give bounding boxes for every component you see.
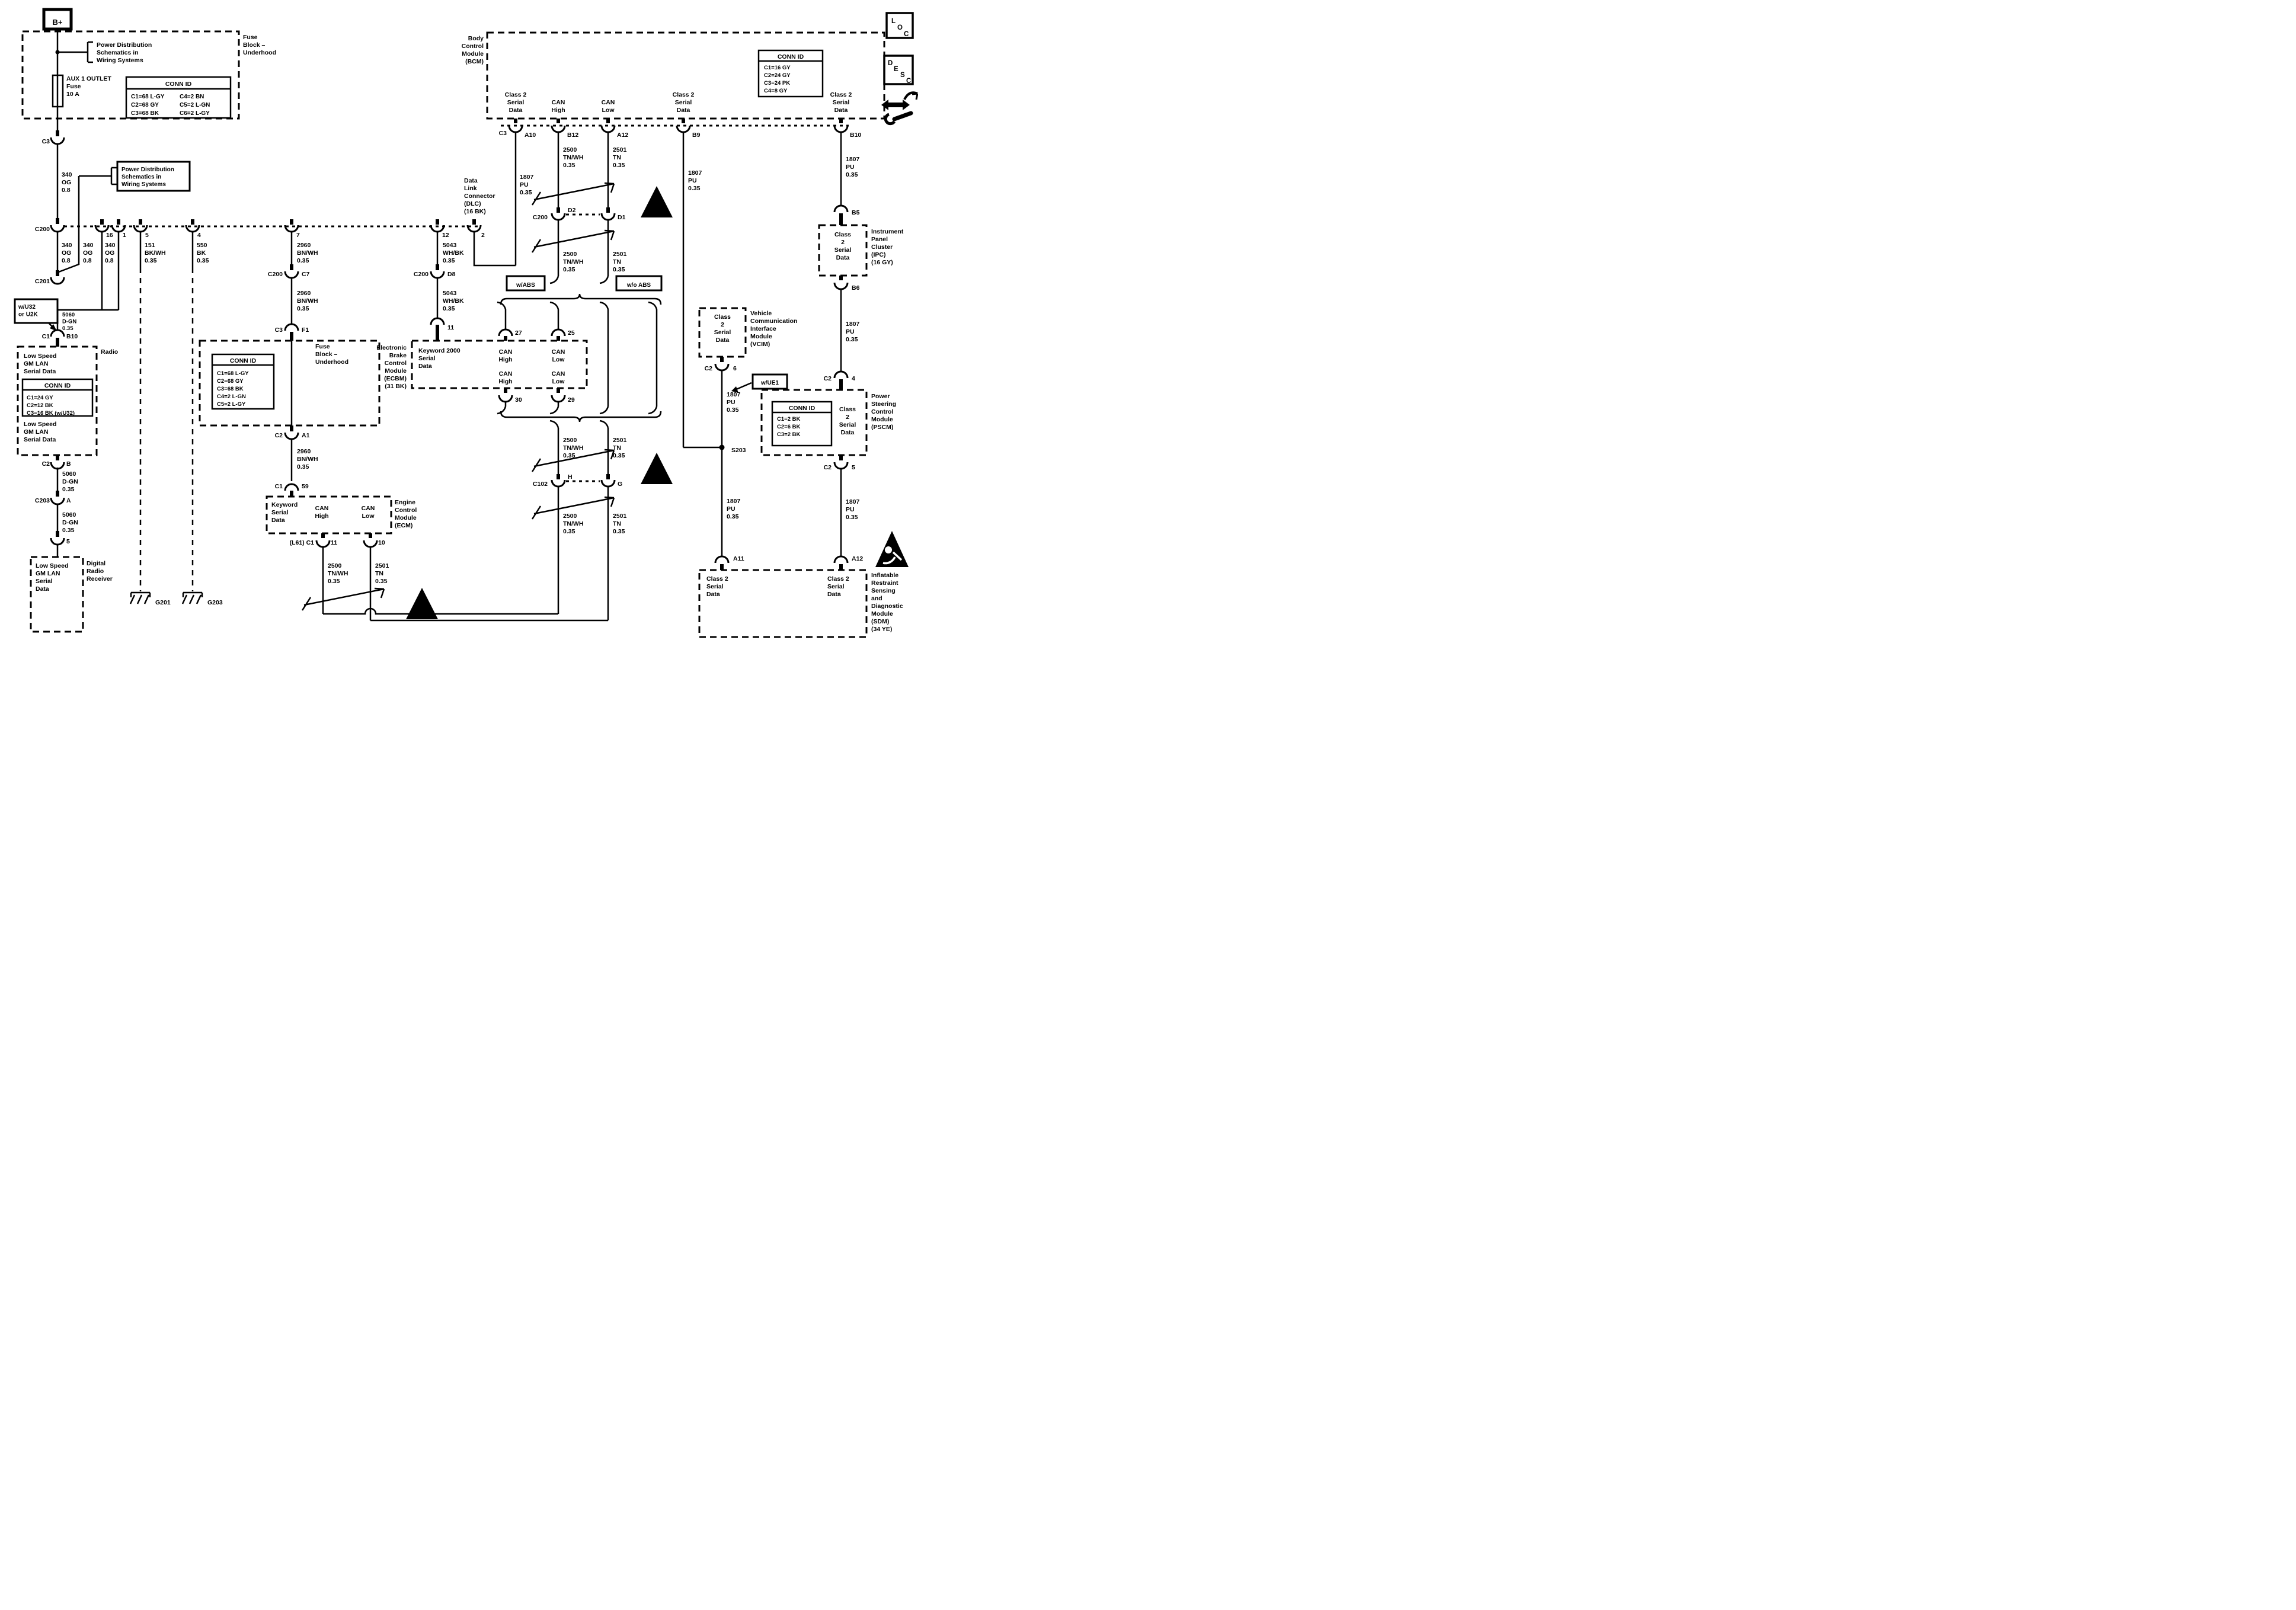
- label-middle-fuse_block2-conn_table-2: C3=68 BK: [217, 386, 244, 392]
- twisted-pair-mark-ecm: [302, 588, 384, 610]
- label-right-sdm-a11: A11: [733, 555, 744, 562]
- label-left-radio-lan: Low SpeedGM LANSerial Data: [24, 421, 56, 443]
- label-left-row_pins-p16: 16: [106, 232, 113, 239]
- splice-s203-dot: [720, 445, 725, 450]
- stub-c201: [56, 270, 59, 276]
- label-middle-ecbm-p27: 27: [515, 329, 522, 337]
- label-left-fuse_block1-conn_table-5: C6=2 L-GY: [180, 110, 210, 117]
- label-right-sdm-label: InflatableRestraintSensingandDiagnosticM…: [871, 572, 903, 633]
- label-right-bcm-conn_table-0: C1=16 GY: [764, 65, 791, 71]
- label-middle-wire_2501: 2501TN0.35: [613, 437, 627, 459]
- label-middle-ecm-p10: 10: [378, 539, 385, 546]
- w-ue1-arrow-line: [735, 383, 752, 390]
- label-middle-ecbm-can_high: CANHigh: [498, 370, 512, 385]
- label-right-g: G: [618, 481, 622, 488]
- label-right-ipc-b5: B5: [852, 209, 860, 216]
- connector-c200-d8: [431, 271, 444, 278]
- connector-ecbm-pin27: [499, 329, 512, 336]
- label-middle-ecbm-p29: 29: [568, 396, 575, 404]
- label-middle-f1: F1: [302, 327, 309, 334]
- label-right-vcim-p6: 6: [733, 365, 737, 372]
- label-right-ipc-class2: Class2SerialData: [834, 231, 852, 261]
- label-right-vcim-class2: Class2SerialData: [714, 313, 731, 344]
- label-left-radio-conn_table-1: C2=12 BK: [27, 402, 53, 409]
- stub-ecbm-25: [557, 336, 560, 341]
- label-middle-ecbm-can_high: CANHigh: [498, 348, 512, 363]
- label-right-vcim-label: VehicleCommunicationInterfaceModule(VCIM…: [750, 310, 797, 348]
- label-middle-c3: C3: [275, 327, 283, 334]
- label-left-wire_5060: 5060D-GN0.35: [62, 511, 78, 534]
- label-middle-dlc-label: DataLinkConnector(DLC)(16 BK): [464, 177, 495, 215]
- label-right-bcm-c3: C3: [499, 130, 507, 137]
- wire-end-hooks-tops: [497, 302, 657, 309]
- label-right-w_abs: w/ABS: [516, 282, 535, 289]
- connector-c2-a1: [285, 433, 298, 439]
- label-left-fuse_block1-conn_table-0: C1=68 L-GY: [131, 94, 165, 100]
- label-left-wire_151: 151BK/WH0.35: [145, 242, 166, 264]
- label-right-bcm-b10: B10: [850, 132, 861, 139]
- label-middle-ecbm-p30: 30: [515, 396, 522, 404]
- stub-pscm-5: [839, 455, 843, 460]
- label-middle-ecbm-p25: 25: [568, 329, 575, 337]
- label-icons-loc-0: L: [891, 18, 896, 25]
- label-middle-c2: C2: [275, 432, 283, 439]
- label-right-wire_1807: 1807PU0.35: [688, 169, 702, 192]
- label-icons-desc-0: D: [888, 60, 893, 67]
- wiring-diagram: B+FuseBlock –UnderhoodPower Distribution…: [0, 0, 918, 644]
- label-right-c200: C200: [533, 214, 548, 221]
- label-left-radio-b10: B10: [66, 333, 78, 340]
- label-right-d1: D1: [618, 214, 626, 221]
- label-left-wire_550: 550BK0.35: [197, 242, 209, 264]
- label-left-radio-conn_table-2: C3=16 BK (w/U32): [27, 410, 75, 417]
- label-icons-desc-3: C: [906, 78, 911, 85]
- label-right-bcm-class2: Class 2SerialData: [830, 91, 852, 114]
- abs-brace-bottom: [501, 411, 661, 422]
- stub-bcm-b9: [682, 119, 685, 123]
- connector-c200: [51, 225, 64, 232]
- label-left-wire_5060: 5060D-GN0.35: [62, 312, 76, 332]
- stub-pin5: [139, 219, 142, 225]
- label-right-wire_1807: 1807PU0.35: [727, 498, 741, 520]
- stub-pscm-4: [839, 379, 843, 390]
- stub-c102-g: [606, 474, 610, 479]
- label-left-receiver-lan: Low SpeedGM LANSerialData: [36, 562, 68, 593]
- label-common-conn_id: CONN ID: [789, 405, 816, 412]
- connector-c200-d2: [552, 213, 565, 220]
- connector-c1-59: [285, 484, 298, 491]
- junction-dot-bplus: [56, 50, 60, 55]
- label-right-bcm-b12: B12: [567, 132, 578, 139]
- stub-pin12: [436, 219, 439, 225]
- stub-radio-c2: [56, 455, 59, 460]
- label-right-wire_1807: 1807PU0.35: [846, 156, 860, 178]
- stub-ecm-11: [321, 533, 325, 538]
- stub-pin7: [290, 219, 293, 225]
- label-icons-loc-2: C: [904, 31, 909, 38]
- stub-radio-b10: [56, 338, 59, 347]
- label-right-pscm-conn_table-2: C3=2 BK: [777, 431, 800, 438]
- connector-ecm-pin10: [364, 540, 377, 547]
- label-right-bcm-class2: Class 2SerialData: [673, 91, 695, 114]
- connector-c102-g: [602, 480, 615, 486]
- connector-ecbm-pin30: [499, 395, 512, 402]
- label-middle-ecbm-keyword: Keyword 2000SerialData: [418, 347, 461, 370]
- stub-ipc-b6: [839, 276, 843, 280]
- label-middle-wire_5043: 5043WH/BK0.35: [443, 290, 464, 312]
- label-left-wire_340: 340OG0.8: [62, 171, 72, 194]
- label-right-h: H: [568, 473, 573, 481]
- label-left-power_dist1: Power DistributionSchematics inWiring Sy…: [97, 41, 152, 64]
- stub-d1: [606, 207, 610, 213]
- connector-bcm-b10: [834, 126, 848, 132]
- label-left-fuse_block1-conn_table-3: C4=2 BN: [180, 94, 204, 100]
- label-middle-wire_2960: 2960BN/WH0.35: [297, 290, 318, 312]
- label-right-bcm-b9: B9: [692, 132, 701, 139]
- stub-bcm-b12: [557, 119, 560, 123]
- label-left-bplus: B+: [53, 18, 63, 27]
- stub-a1: [290, 425, 293, 431]
- label-middle-wire_2500: 2500TN/WH0.35: [563, 437, 583, 459]
- label-right-bcm-conn_table-1: C2=24 GY: [764, 72, 791, 79]
- connector-c201: [51, 277, 64, 284]
- label-left-fuse_block1-fuse: AUX 1 OUTLETFuse10 A: [66, 75, 111, 98]
- stub-ecbm-11: [436, 325, 439, 341]
- label-right-bcm-can_high: CANHigh: [551, 99, 565, 114]
- label-right-pscm-p5: 5: [852, 464, 855, 471]
- label-left-g201: G201: [155, 599, 171, 606]
- power-dist-1-bracket: [57, 42, 93, 62]
- label-right-bcm-a12: A12: [617, 132, 628, 139]
- connector-bcm-a10: [509, 126, 522, 132]
- label-common-warn: !: [655, 469, 659, 482]
- connector-pscm-c2-5: [834, 462, 848, 469]
- stub-d2: [557, 207, 560, 213]
- stub-bcm-b10: [839, 119, 843, 123]
- label-left-radio-label: Radio: [101, 348, 118, 356]
- stub-59: [290, 491, 293, 497]
- label-right-wo_abs: w/o ABS: [626, 282, 651, 289]
- stub-ipc-b5: [839, 213, 843, 225]
- label-right-pscm-p4: 4: [852, 375, 855, 382]
- wiring-diagram-page: B+FuseBlock –UnderhoodPower Distribution…: [0, 0, 918, 644]
- label-middle-wire_2501: 2501TN0.35: [375, 562, 389, 585]
- twisted-pair-mark-d2-lower: [532, 231, 614, 252]
- stub-ecbm-29: [557, 388, 560, 393]
- label-middle-fuse_block2-conn_table-1: C2=68 GY: [217, 378, 244, 385]
- label-left-c203: C203: [35, 497, 50, 504]
- ground-g203-symbol: [183, 593, 202, 604]
- label-right-d2: D2: [568, 207, 576, 214]
- label-middle-ecbm-label: ElectronicBrakeControlModule(ECBM)(31 BK…: [376, 344, 407, 390]
- label-right-bcm-a10: A10: [525, 132, 536, 139]
- label-left-row_pins-p2: 2: [481, 232, 485, 239]
- label-right-vcim-w_ue1: w/UE1: [760, 380, 779, 386]
- ground-g201-symbol: [130, 593, 150, 604]
- label-left-p5b: 5: [66, 538, 70, 545]
- label-right-sdm-a12: A12: [852, 555, 863, 562]
- connector-ecm-pin11: [316, 540, 330, 547]
- label-left-fuse_block1-conn_table-1: C2=68 GY: [131, 102, 159, 108]
- stub-bcm-a12: [606, 119, 610, 123]
- connector-ipc-b6: [834, 283, 848, 289]
- label-right-wire_1807: 1807PU0.35: [846, 321, 860, 343]
- label-left-c200: C200: [35, 226, 50, 233]
- label-middle-c7: C7: [302, 271, 310, 278]
- stub-ecbm-27: [504, 336, 507, 341]
- label-middle-wire_2500: 2500TN/WH0.35: [563, 146, 583, 169]
- service-wrench-icon[interactable]: [885, 92, 917, 123]
- label-middle-n59: 59: [302, 483, 309, 490]
- connector-bcm-a12: [602, 126, 615, 132]
- connector-bcm-b12: [552, 126, 565, 132]
- connector-ipc-b5: [834, 206, 848, 212]
- label-middle-fuse_block2-conn_table-3: C4=2 L-GN: [217, 393, 246, 400]
- label-right-c102: C102: [533, 481, 548, 488]
- label-right-vcim-s203: S203: [731, 447, 746, 454]
- label-middle-wire_2500: 2500TN/WH0.35: [563, 251, 583, 273]
- label-right-pscm-class2: Class2SerialData: [839, 406, 856, 436]
- label-common-warn: !: [420, 604, 424, 617]
- label-common-conn_id: CONN ID: [230, 357, 257, 364]
- label-right-pscm-c2: C2: [824, 464, 832, 471]
- label-middle-wire_5043: 5043WH/BK0.35: [443, 242, 464, 264]
- label-left-radio-lan: Low SpeedGM LANSerial Data: [24, 353, 56, 375]
- label-middle-c200: C200: [268, 271, 283, 278]
- label-left-row_pins-p4: 4: [197, 232, 201, 239]
- stub-bcm-a10: [514, 119, 517, 123]
- label-left-radio-c2: C2: [42, 460, 50, 468]
- label-left-wire_340: 340OG0.8: [83, 242, 94, 264]
- wire-end-hooks-above-brace: [550, 276, 608, 283]
- connector-c3: [51, 137, 64, 144]
- label-right-bcm-class2: Class 2SerialData: [505, 91, 527, 114]
- connector-ecbm-pin29: [552, 395, 565, 402]
- label-left-radio-b: B: [66, 460, 71, 468]
- label-common-conn_id: CONN ID: [778, 53, 804, 60]
- label-middle-ecm-can_low: CANLow: [362, 505, 375, 520]
- label-middle-ecbm-p11: 11: [447, 324, 454, 331]
- stub-c3: [56, 130, 59, 136]
- stub-pin4: [191, 219, 194, 225]
- connector-ecbm-pin11: [431, 318, 444, 325]
- stub-sdm-a12: [839, 564, 843, 570]
- label-left-fuse_block1-conn_table-4: C5=2 L-GN: [180, 102, 210, 108]
- twisted-pair-mark-d2-upper: [532, 183, 614, 205]
- label-common-warn: !: [655, 203, 659, 216]
- stub-c200: [56, 218, 59, 224]
- label-middle-fuse_block2-conn_table-4: C5=2 L-GY: [217, 401, 246, 408]
- service-double-arrow-icon[interactable]: [881, 100, 910, 110]
- label-right-wire_1807: 1807PU0.35: [520, 174, 534, 196]
- stub-sdm-a11: [720, 564, 724, 570]
- label-left-row_pins-p1: 1: [123, 232, 126, 239]
- label-common-conn_id: CONN ID: [44, 382, 71, 389]
- stub-f1: [290, 332, 293, 341]
- label-middle-ecbm-can_low: CANLow: [552, 370, 565, 385]
- connector-receiver-pin5: [51, 538, 64, 545]
- stub-dlc-pin2: [472, 219, 476, 225]
- label-icons-loc-1: O: [897, 24, 903, 31]
- label-middle-ecm-keyword: KeywordSerialData: [271, 501, 298, 524]
- label-left-row_pins-p12: 12: [442, 232, 449, 239]
- label-icons-desc-1: E: [894, 66, 898, 73]
- label-right-pscm-c2: C2: [824, 375, 832, 382]
- power-dist-2-bracket: [79, 168, 117, 184]
- stub-c7: [290, 264, 293, 270]
- connector-ecbm-pin25: [552, 329, 565, 336]
- label-right-sdm-class2: Class 2SerialData: [706, 575, 728, 598]
- label-right-wire_1807: 1807PU0.35: [846, 498, 860, 521]
- label-middle-wire_2960: 2960BN/WH0.35: [297, 242, 318, 264]
- label-right-bcm-can_low: CANLow: [602, 99, 615, 114]
- label-middle-a1: A1: [302, 432, 310, 439]
- label-middle-wire_2500: 2500TN/WH0.35: [563, 513, 583, 535]
- label-middle-ecbm-c200: C200: [414, 271, 428, 278]
- connector-vcim-c2-6: [715, 364, 728, 370]
- label-left-c201: C201: [35, 278, 50, 285]
- label-left-power_dist2: Power DistributionSchematics inWiring Sy…: [121, 167, 174, 188]
- label-left-c3: C3: [42, 138, 50, 145]
- label-left-radio-conn_table-0: C1=24 GY: [27, 395, 53, 401]
- stub-c102-h: [557, 474, 560, 479]
- label-middle-ecm-p11: 11: [331, 539, 337, 546]
- label-common-conn_id: CONN ID: [165, 81, 192, 88]
- label-middle-ecm-can_high: CANHigh: [315, 505, 328, 520]
- connector-c203-a: [51, 498, 64, 504]
- label-right-pscm-label: PowerSteeringControlModule(PSCM): [871, 393, 896, 431]
- abs-alternative-wires: [506, 309, 657, 406]
- label-right-ipc-b6: B6: [852, 284, 860, 292]
- label-left-w_u32: w/U32or U2K: [18, 304, 39, 318]
- label-right-bcm-conn_table-2: C3=24 PK: [764, 80, 790, 87]
- label-left-row_pins-p7: 7: [296, 232, 300, 239]
- label-left-fuse_block1-label: FuseBlock –Underhood: [243, 34, 276, 56]
- abs-brace-top: [501, 294, 661, 305]
- label-middle-ecbm-can_low: CANLow: [552, 348, 565, 363]
- stub-vcim-6: [720, 357, 724, 362]
- label-middle-fuse_block2-label: FuseBlock –Underhood: [315, 343, 348, 366]
- label-middle-wire_2501: 2501TN0.35: [613, 513, 627, 535]
- wire-end-hooks-bottoms: [497, 406, 657, 414]
- label-right-sdm-class2: Class 2SerialData: [827, 575, 849, 598]
- label-middle-wire_2501: 2501TN0.35: [613, 251, 627, 273]
- label-middle-wire_2501: 2501TN0.35: [613, 146, 627, 169]
- label-left-receiver-label: DigitalRadioReceiver: [87, 560, 113, 582]
- stub-c203: [56, 491, 59, 497]
- label-middle-fuse_block2-conn_table-0: C1=68 L-GY: [217, 370, 249, 377]
- label-left-wire_5060: 5060D-GN0.35: [62, 470, 78, 493]
- wire-2500-join: [323, 609, 558, 614]
- label-left-wire_340: 340OG0.8: [105, 242, 116, 264]
- label-middle-ecm-l61: (L61) C1: [290, 539, 315, 546]
- connector-c3-f1: [285, 324, 298, 331]
- connector-pscm-c2-4: [834, 372, 848, 378]
- stub-receiver-5: [56, 531, 59, 537]
- connector-sdm-a12: [834, 556, 848, 563]
- label-left-row_pins-p5: 5: [145, 232, 149, 239]
- label-middle-ecm-label: EngineControlModule(ECM): [395, 499, 417, 529]
- connector-bcm-b9: [677, 126, 690, 132]
- label-left-g203: G203: [207, 599, 223, 606]
- stub-ecm-10: [369, 533, 372, 538]
- label-middle-wire_2960: 2960BN/WH0.35: [297, 448, 318, 470]
- label-middle-wire_2500: 2500TN/WH0.35: [328, 562, 348, 585]
- stub-ecbm-30: [504, 388, 507, 393]
- stub-d8: [436, 264, 439, 270]
- stub-pin1: [117, 219, 120, 225]
- label-icons-desc-2: S: [900, 72, 905, 79]
- label-left-wire_340: 340OG0.8: [62, 242, 72, 264]
- label-right-wire_1807: 1807PU0.35: [727, 391, 741, 414]
- connector-c102-h: [552, 480, 565, 486]
- label-right-bcm-conn_table-3: C4=8 GY: [764, 88, 788, 94]
- label-left-a: A: [66, 497, 71, 504]
- label-left-radio-c1: C1: [42, 333, 50, 340]
- label-right-bcm-label: BodyControlModule(BCM): [462, 35, 484, 65]
- label-middle-c1: C1: [275, 483, 283, 490]
- connector-sdm-a11: [715, 556, 728, 563]
- label-left-fuse_block1-conn_table-2: C3=68 BK: [131, 110, 159, 117]
- label-right-pscm-conn_table-1: C2=6 BK: [777, 424, 800, 430]
- label-middle-ecbm-d8: D8: [447, 271, 456, 278]
- connector-c200-d1: [602, 213, 615, 220]
- stub-pin16: [100, 219, 104, 225]
- connector-c200-c7: [285, 271, 298, 278]
- label-right-vcim-c2: C2: [705, 365, 713, 372]
- label-right-pscm-conn_table-0: C1=2 BK: [777, 416, 800, 422]
- label-right-ipc-label: InstrumentPanelCluster(IPC)(16 GY): [871, 228, 904, 266]
